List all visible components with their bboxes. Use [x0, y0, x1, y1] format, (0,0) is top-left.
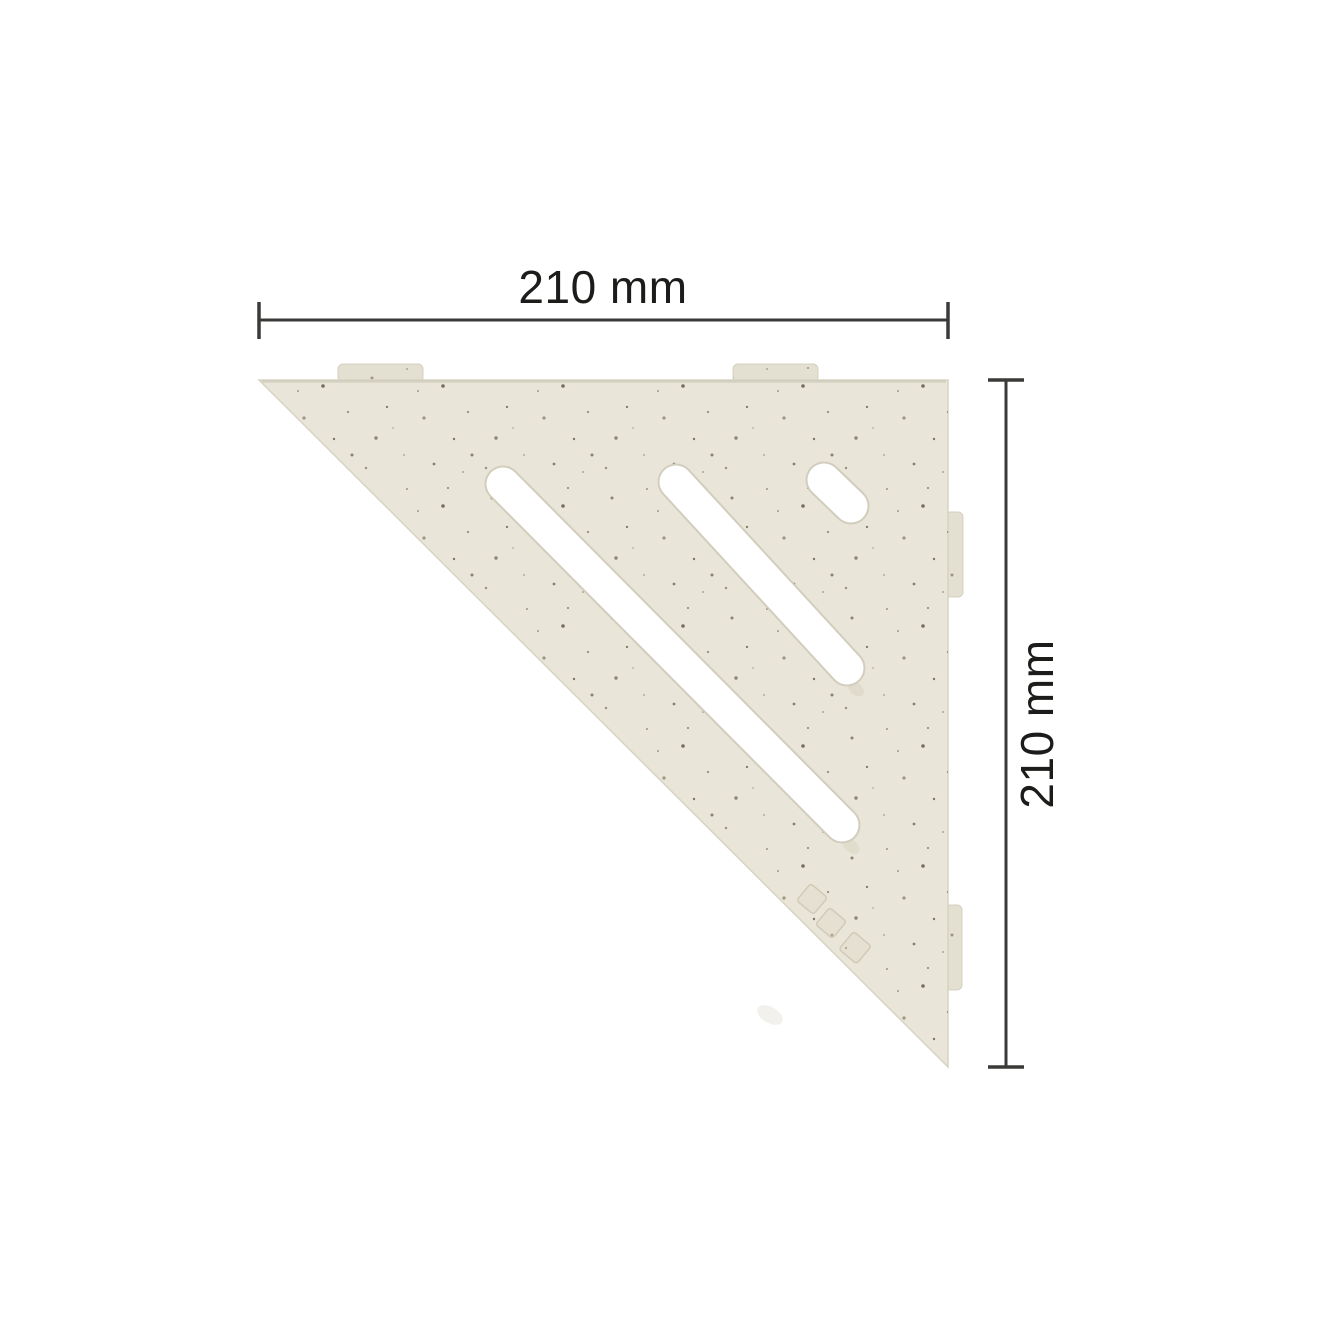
slot-short	[824, 480, 851, 506]
height-dimension-label: 210 mm	[1011, 639, 1063, 808]
diagram-canvas: 210 mm 210 mm	[0, 0, 1320, 1320]
corner-shelf	[259, 364, 963, 1067]
width-dimension-label: 210 mm	[518, 261, 687, 313]
